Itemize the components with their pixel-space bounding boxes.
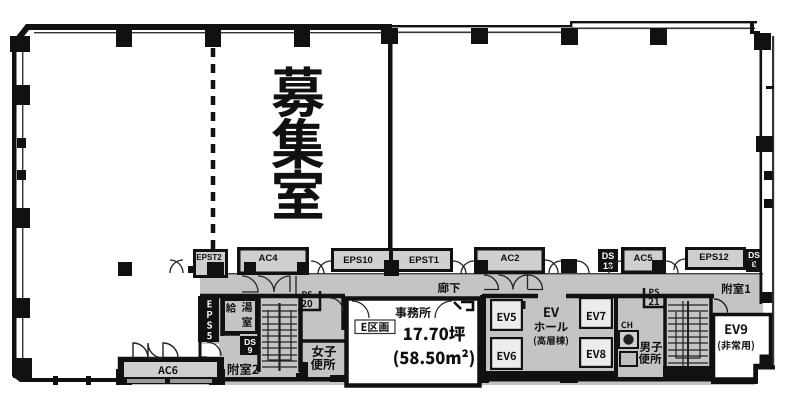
svg-text:9: 9 <box>248 345 253 355</box>
svg-text:AC2: AC2 <box>500 253 519 264</box>
svg-text:EPS10: EPS10 <box>343 255 373 266</box>
svg-text:AC4: AC4 <box>258 253 278 264</box>
svg-text:EPST1: EPST1 <box>409 255 440 266</box>
svg-text:DS: DS <box>602 251 615 261</box>
svg-text:EPS12: EPS12 <box>699 252 729 263</box>
svg-text:EPST2: EPST2 <box>196 253 222 262</box>
svg-text:AC5: AC5 <box>633 253 653 264</box>
